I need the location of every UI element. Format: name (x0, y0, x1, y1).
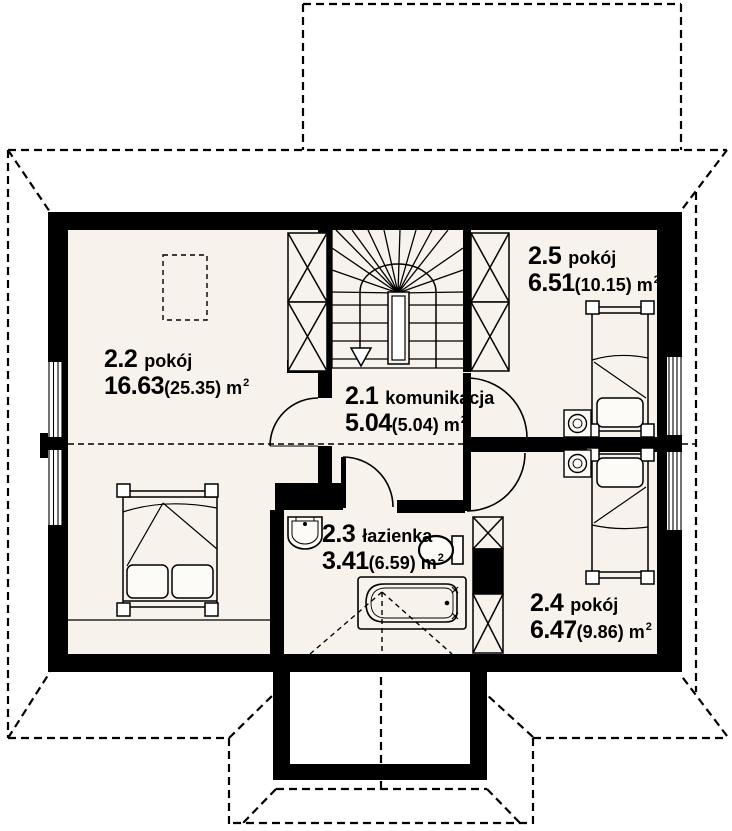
room-label-2-3: 2.3łazienka 3.41(6.59)m2 (322, 521, 443, 575)
room-label-2-4: 2.4pokój 6.47(9.86)m2 (530, 590, 651, 644)
nightstand-lamp-2-4-icon (564, 450, 591, 477)
sink-icon (288, 517, 322, 549)
window-left-lower (48, 450, 62, 525)
window-right-lower (667, 452, 682, 530)
window-right-upper (667, 357, 682, 435)
nightstand-lamp-2-5-icon (564, 410, 591, 437)
porch-walls (273, 672, 487, 780)
room-label-2-1: 2.1komunikacja 5.04(5.04)m2 (345, 383, 494, 437)
room-label-2-5: 2.5pokój 6.51(10.15)m2 (528, 243, 659, 297)
window-left-upper (48, 362, 62, 437)
floor-plan-canvas: 2.2pokój 16.63(25.35)m2 2.1komunikacja 5… (0, 0, 732, 831)
room-label-2-2: 2.2pokój 16.63(25.35)m2 (104, 346, 248, 400)
